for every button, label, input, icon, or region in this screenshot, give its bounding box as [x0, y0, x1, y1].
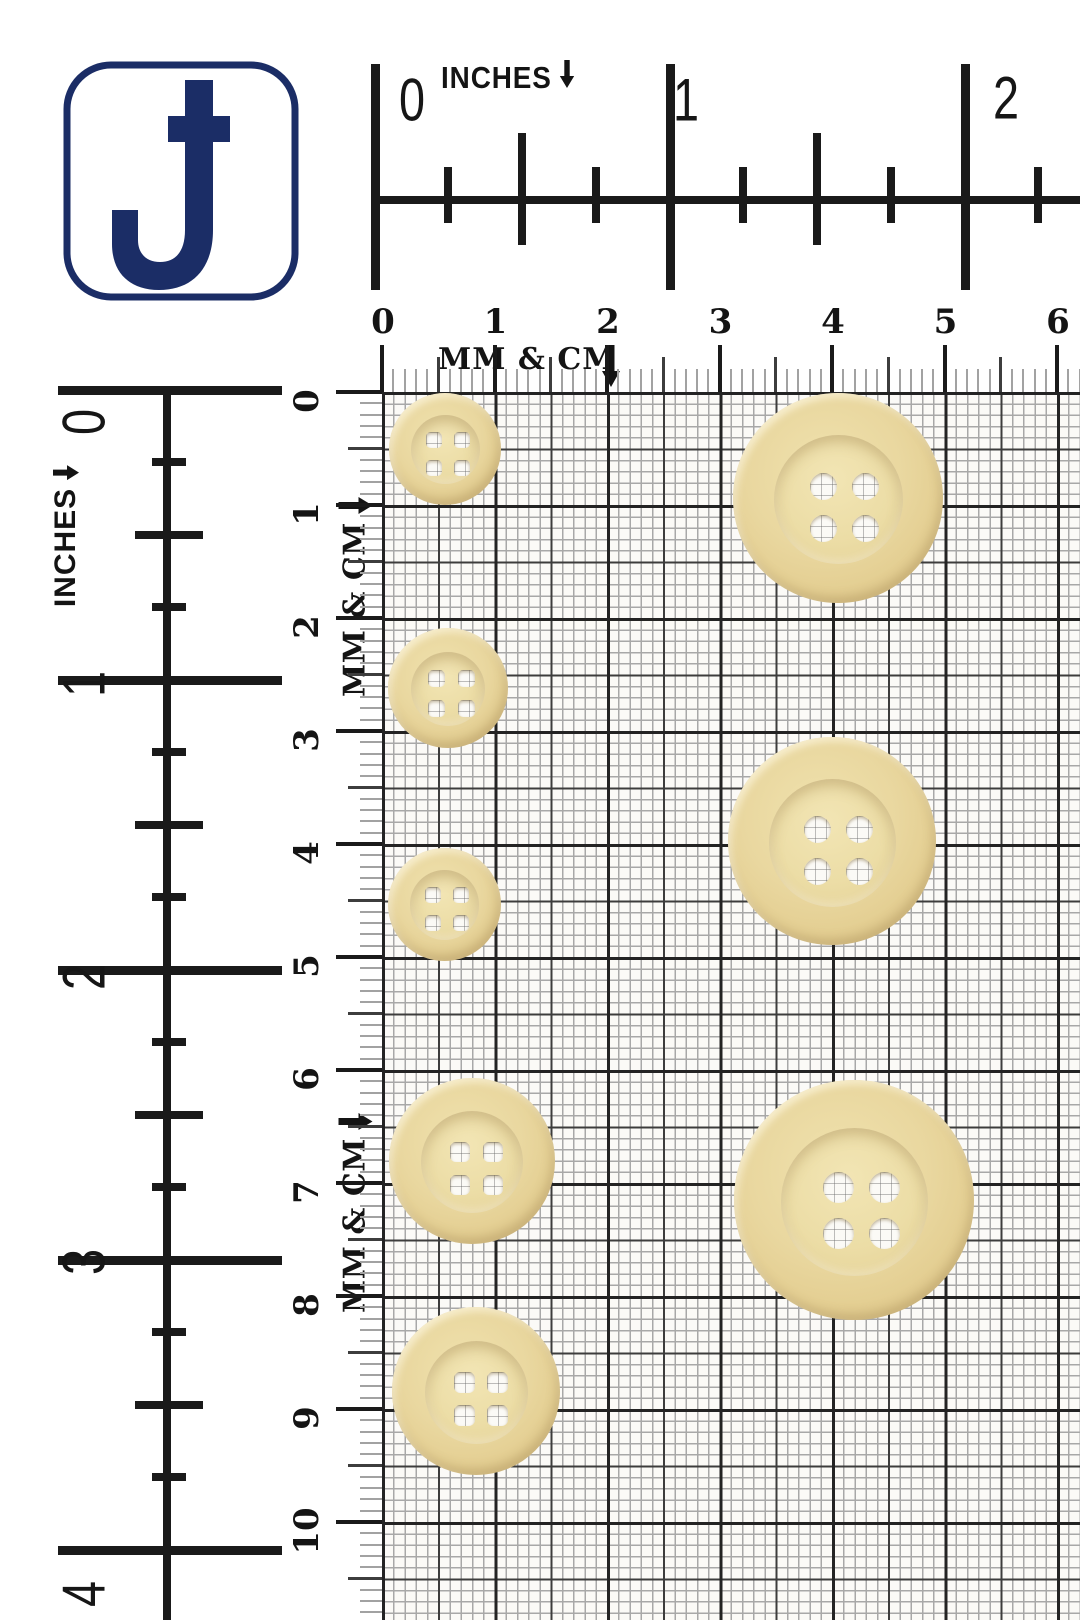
metric-tick — [360, 538, 382, 540]
inch-ruler-baseline — [163, 386, 171, 1620]
metric-tick — [572, 369, 574, 392]
metric-tick — [527, 369, 529, 392]
metric-tick — [830, 345, 834, 392]
left-inches-text: INCHES — [49, 488, 83, 607]
metric-tick — [651, 369, 653, 392]
metric-tick — [539, 369, 541, 392]
button-hole — [846, 816, 873, 843]
metric-tick — [360, 888, 382, 890]
inch-tick-quarter — [739, 167, 747, 223]
metric-tick — [348, 786, 382, 789]
metric-tick — [360, 1566, 382, 1568]
metric-tick — [360, 1092, 382, 1094]
inch-tick-quarter — [152, 603, 186, 611]
metric-tick — [360, 1148, 382, 1150]
metric-tick — [360, 1363, 382, 1365]
mm-cm-ruler-number: 2 — [596, 302, 620, 342]
metric-tick — [360, 1058, 382, 1060]
inch-tick-quarter — [152, 1038, 186, 1046]
metric-tick — [348, 447, 382, 450]
metric-tick — [460, 369, 462, 392]
metric-tick — [360, 436, 382, 438]
metric-tick — [482, 369, 484, 392]
metric-tick — [348, 560, 382, 563]
mm-cm-ruler-number: 5 — [287, 954, 327, 978]
button-hole — [869, 1218, 900, 1249]
metric-tick — [336, 390, 382, 394]
metric-tick — [989, 369, 991, 392]
metric-tick — [842, 369, 844, 392]
metric-tick — [336, 955, 382, 959]
metric-tick — [348, 1464, 382, 1467]
button-hole — [426, 432, 442, 448]
arrow-icon — [53, 465, 79, 480]
metric-tick — [426, 369, 428, 392]
button-hole — [454, 460, 470, 476]
metric-tick — [730, 369, 732, 392]
metric-tick — [360, 809, 382, 811]
metric-tick — [360, 459, 382, 461]
metric-tick — [360, 696, 382, 698]
inch-tick-quarter — [152, 748, 186, 756]
inch-tick-half — [813, 133, 821, 245]
metric-tick — [360, 1397, 382, 1399]
metric-tick — [360, 1374, 382, 1376]
metric-tick — [820, 369, 822, 392]
metric-tick — [360, 1544, 382, 1546]
button-hole — [852, 515, 879, 542]
metric-tick — [707, 369, 709, 392]
metric-tick — [629, 369, 631, 392]
inch-tick-half — [518, 133, 526, 245]
inch-ruler-number: 2 — [50, 964, 119, 990]
metric-tick — [360, 640, 382, 642]
metric-tick — [764, 369, 766, 392]
metric-tick — [348, 1125, 382, 1128]
top-inches-text: INCHES — [441, 60, 552, 96]
inch-tick-major — [371, 64, 380, 290]
inch-ruler-number: 1 — [50, 671, 119, 697]
metric-tick — [797, 369, 799, 392]
metric-tick — [955, 369, 957, 392]
metric-tick — [360, 1193, 382, 1195]
button-hole — [453, 915, 469, 931]
metric-tick — [1067, 369, 1069, 392]
metric-tick — [932, 369, 934, 392]
button-size-chart-photo: INCHES MM & CM INCHES MM & CM MM & CM 01… — [0, 0, 1080, 1620]
large-button-2 — [728, 737, 936, 945]
metric-tick — [360, 866, 382, 868]
inch-ruler-number: 1 — [673, 66, 699, 135]
metric-tick — [336, 729, 382, 733]
metric-tick — [360, 922, 382, 924]
metric-tick — [360, 583, 382, 585]
metric-tick — [360, 470, 382, 472]
metric-tick — [360, 1555, 382, 1557]
inch-tick-quarter — [444, 167, 452, 223]
metric-tick — [392, 369, 394, 392]
metric-tick — [336, 503, 382, 507]
mm-cm-ruler-number: 6 — [287, 1067, 327, 1091]
metric-tick — [360, 990, 382, 992]
button-hole — [454, 1372, 475, 1393]
mm-cm-ruler-number: 8 — [287, 1293, 327, 1317]
button-hole — [425, 915, 441, 931]
inch-tick-half — [135, 531, 203, 539]
large-button-3-recess — [781, 1128, 929, 1276]
metric-tick — [360, 425, 382, 427]
metric-tick — [360, 606, 382, 608]
metric-tick — [360, 832, 382, 834]
metric-tick — [360, 820, 382, 822]
metric-tick — [360, 854, 382, 856]
inch-tick-major — [961, 64, 970, 290]
button-hole — [425, 887, 441, 903]
metric-tick — [360, 1419, 382, 1421]
metric-tick — [360, 1318, 382, 1320]
metric-tick — [336, 616, 382, 620]
inch-tick-quarter — [592, 167, 600, 223]
button-hole — [804, 816, 831, 843]
metric-tick — [360, 1272, 382, 1274]
metric-tick — [360, 753, 382, 755]
metric-tick — [437, 357, 440, 392]
inch-tick-major — [58, 1546, 282, 1555]
metric-tick — [360, 967, 382, 969]
inch-ruler-number: 0 — [399, 66, 425, 135]
metric-tick — [674, 369, 676, 392]
mm-cm-ruler-number: 1 — [287, 502, 327, 526]
mm-cm-ruler-number: 6 — [1046, 302, 1070, 342]
inch-tick-quarter — [152, 1473, 186, 1481]
button-hole — [846, 858, 873, 885]
j-logo-icon — [62, 60, 300, 302]
button-hole — [428, 700, 445, 717]
metric-tick — [360, 1227, 382, 1229]
large-button-1 — [733, 393, 943, 603]
metric-tick — [360, 1476, 382, 1478]
metric-tick — [336, 1294, 382, 1298]
medium-button-2-recess — [425, 1341, 528, 1444]
button-hole — [823, 1218, 854, 1249]
button-hole — [454, 1405, 475, 1426]
metric-tick — [360, 685, 382, 687]
metric-tick — [360, 1487, 382, 1489]
metric-tick — [360, 572, 382, 574]
metric-tick — [348, 673, 382, 676]
metric-tick — [561, 369, 563, 392]
button-hole — [454, 432, 470, 448]
metric-tick — [360, 1510, 382, 1512]
inch-ruler-number: 0 — [50, 409, 119, 435]
button-hole — [852, 473, 879, 500]
mm-cm-ruler-number: 7 — [287, 1180, 327, 1204]
mm-cm-ruler-number: 5 — [934, 302, 958, 342]
button-hole — [869, 1172, 900, 1203]
inch-ruler-number: 4 — [50, 1581, 119, 1607]
metric-tick — [360, 877, 382, 879]
metric-tick — [380, 345, 384, 392]
metric-tick — [360, 1035, 382, 1037]
metric-tick — [921, 369, 923, 392]
metric-tick — [854, 369, 856, 392]
metric-tick — [1045, 369, 1047, 392]
metric-tick — [336, 1520, 382, 1524]
button-hole — [483, 1142, 503, 1162]
metric-tick — [336, 842, 382, 846]
mm-cm-ruler-number: 2 — [287, 615, 327, 639]
metric-tick — [360, 549, 382, 551]
mm-cm-ruler-number: 4 — [821, 302, 845, 342]
metric-tick — [966, 369, 968, 392]
metric-tick — [360, 1532, 382, 1534]
metric-tick — [360, 719, 382, 721]
button-hole — [810, 515, 837, 542]
metric-tick — [360, 628, 382, 630]
metric-tick — [360, 1611, 382, 1613]
metric-tick — [786, 369, 788, 392]
metric-tick — [360, 1216, 382, 1218]
metric-tick — [360, 775, 382, 777]
metric-tick — [1055, 345, 1059, 392]
metric-tick — [360, 1306, 382, 1308]
metric-tick — [336, 1407, 382, 1411]
metric-tick — [360, 493, 382, 495]
metric-tick — [696, 369, 698, 392]
metric-tick — [348, 1238, 382, 1241]
metric-tick — [549, 357, 552, 392]
metric-tick — [415, 369, 417, 392]
metric-tick — [977, 369, 979, 392]
metric-tick — [360, 1453, 382, 1455]
metric-tick — [584, 369, 586, 392]
metric-tick — [360, 707, 382, 709]
metric-tick — [360, 764, 382, 766]
metric-tick — [360, 1498, 382, 1500]
inch-tick-half — [135, 821, 203, 829]
small-button-1-recess — [411, 415, 480, 484]
mm-cm-ruler-number: 0 — [287, 389, 327, 413]
metric-tick — [360, 1385, 382, 1387]
mm-cm-ruler-number: 0 — [371, 302, 395, 342]
metric-tick — [360, 651, 382, 653]
metric-tick — [360, 1103, 382, 1105]
inch-tick-major — [58, 386, 282, 395]
metric-tick — [605, 345, 609, 392]
metric-tick — [360, 1329, 382, 1331]
metric-tick — [360, 1159, 382, 1161]
metric-tick — [360, 1340, 382, 1342]
metric-tick — [1034, 369, 1036, 392]
button-hole — [458, 670, 475, 687]
metric-tick — [360, 911, 382, 913]
inch-tick-quarter — [152, 893, 186, 901]
button-hole — [487, 1405, 508, 1426]
button-hole — [458, 700, 475, 717]
button-hole — [483, 1175, 503, 1195]
metric-tick — [360, 1080, 382, 1082]
inch-ruler-baseline — [371, 196, 1080, 204]
metric-tick — [360, 741, 382, 743]
metric-tick — [348, 1012, 382, 1015]
button-hole — [453, 887, 469, 903]
mm-cm-ruler-number: 3 — [287, 728, 327, 752]
mm-cm-ruler-number: 10 — [287, 1507, 327, 1554]
metric-tick — [887, 357, 890, 392]
metric-tick — [595, 369, 597, 392]
mm-cm-ruler-number: 4 — [287, 841, 327, 865]
metric-tick — [348, 899, 382, 902]
metric-tick — [876, 369, 878, 392]
metric-tick — [360, 1046, 382, 1048]
metric-tick — [493, 345, 497, 392]
metric-tick — [360, 1114, 382, 1116]
button-hole — [450, 1142, 470, 1162]
medium-button-2 — [392, 1307, 560, 1475]
small-button-1 — [389, 393, 501, 505]
metric-tick — [943, 345, 947, 392]
button-hole — [810, 473, 837, 500]
metric-tick — [360, 594, 382, 596]
top-inches-label: INCHES — [441, 60, 574, 96]
metric-tick — [718, 345, 722, 392]
large-button-1-recess — [774, 435, 903, 564]
metric-tick — [360, 481, 382, 483]
metric-tick — [360, 1261, 382, 1263]
inch-ruler-number: 3 — [50, 1249, 119, 1275]
metric-tick — [360, 945, 382, 947]
metric-tick — [360, 527, 382, 529]
inch-ruler-number: 2 — [993, 64, 1019, 133]
metric-tick — [1011, 369, 1013, 392]
inch-tick-half — [135, 1401, 203, 1409]
button-hole — [823, 1172, 854, 1203]
metric-tick — [662, 357, 665, 392]
metric-tick — [360, 979, 382, 981]
metric-tick — [360, 798, 382, 800]
metric-tick — [360, 414, 382, 416]
button-hole — [428, 670, 445, 687]
metric-tick — [505, 369, 507, 392]
metric-tick — [360, 1171, 382, 1173]
small-button-3-recess — [410, 870, 479, 939]
metric-tick — [360, 515, 382, 517]
metric-tick — [516, 369, 518, 392]
metric-tick — [360, 933, 382, 935]
metric-tick — [899, 369, 901, 392]
inch-tick-quarter — [152, 1183, 186, 1191]
metric-tick — [471, 369, 473, 392]
metric-tick — [685, 369, 687, 392]
button-hole — [426, 460, 442, 476]
mm-cm-ruler-number: 3 — [709, 302, 733, 342]
metric-tick — [809, 369, 811, 392]
button-hole — [804, 858, 831, 885]
metric-tick — [360, 1442, 382, 1444]
metric-tick — [336, 1181, 382, 1185]
metric-tick — [865, 369, 867, 392]
metric-tick — [360, 1137, 382, 1139]
inch-tick-quarter — [887, 167, 895, 223]
mm-cm-ruler-number: 1 — [484, 302, 508, 342]
button-hole — [450, 1175, 470, 1195]
metric-tick — [360, 1205, 382, 1207]
metric-tick — [360, 1024, 382, 1026]
metric-tick — [360, 402, 382, 404]
metric-tick — [1022, 369, 1024, 392]
left-mm-cm-text: MM & CM — [338, 1138, 373, 1313]
metric-tick — [617, 369, 619, 392]
metric-tick — [360, 1431, 382, 1433]
metric-tick — [360, 1250, 382, 1252]
inch-tick-quarter — [152, 458, 186, 466]
metric-tick — [449, 369, 451, 392]
metric-tick — [348, 1351, 382, 1354]
large-button-2-recess — [769, 779, 897, 907]
metric-tick — [360, 1589, 382, 1591]
metric-tick — [360, 1284, 382, 1286]
inch-tick-half — [135, 1111, 203, 1119]
metric-tick — [910, 369, 912, 392]
inch-tick-quarter — [152, 1328, 186, 1336]
metric-tick — [999, 357, 1002, 392]
metric-tick — [360, 662, 382, 664]
inch-tick-quarter — [1034, 167, 1042, 223]
mm-cm-ruler-number: 9 — [287, 1406, 327, 1430]
brand-logo — [62, 60, 300, 302]
small-button-3 — [388, 848, 501, 961]
metric-tick — [336, 1068, 382, 1072]
metric-tick — [774, 357, 777, 392]
medium-button-1-recess — [421, 1111, 523, 1213]
metric-tick — [640, 369, 642, 392]
metric-tick — [752, 369, 754, 392]
down-arrow-icon — [560, 60, 574, 88]
metric-tick — [360, 1600, 382, 1602]
metric-tick — [404, 369, 406, 392]
metric-tick — [741, 369, 743, 392]
button-hole — [487, 1372, 508, 1393]
metric-tick — [360, 1001, 382, 1003]
metric-tick — [348, 1577, 382, 1580]
large-button-3 — [734, 1080, 974, 1320]
left-inches-label: INCHES — [49, 465, 83, 607]
small-button-2 — [388, 628, 508, 748]
medium-button-1 — [389, 1078, 555, 1244]
